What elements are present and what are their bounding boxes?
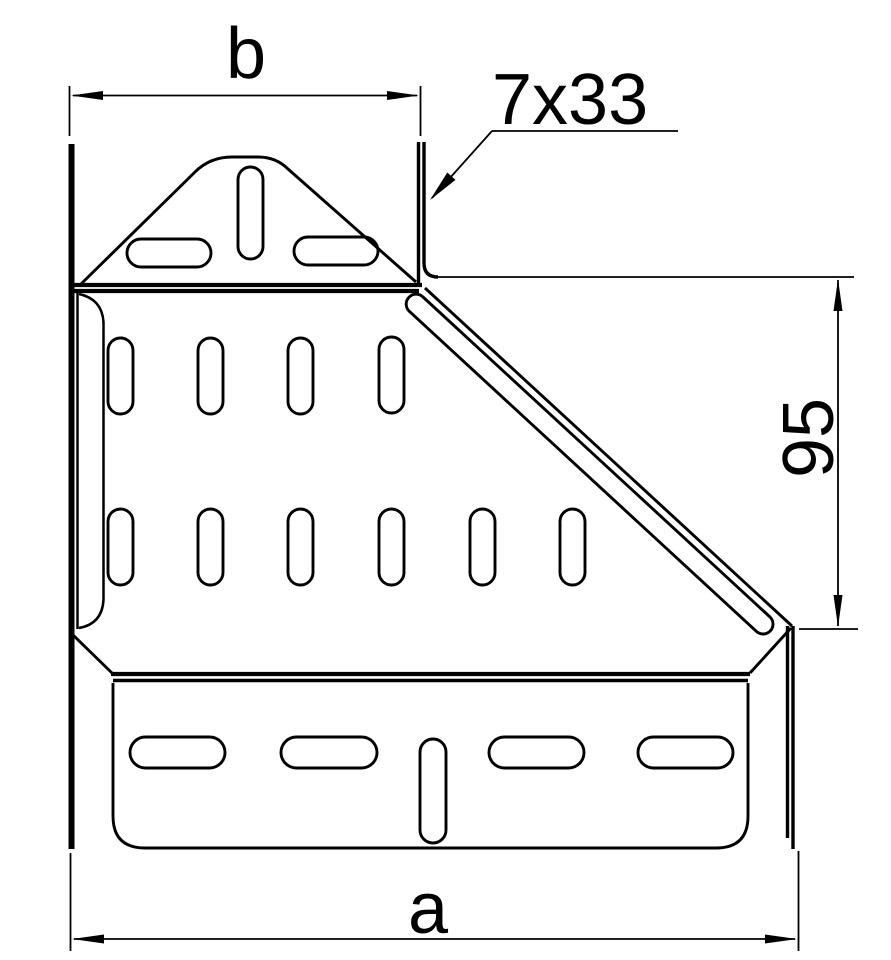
diagonal-fold-band bbox=[406, 294, 773, 634]
slot bbox=[638, 737, 733, 768]
left-flange-inner-line bbox=[79, 294, 104, 628]
slot bbox=[288, 509, 313, 585]
upper-right-edge-outer bbox=[424, 142, 438, 277]
slot bbox=[198, 509, 223, 585]
top-tab-slot-vertical bbox=[238, 167, 263, 259]
technical-drawing-canvas: b 7x33 95 a bbox=[0, 0, 891, 960]
slot-size-callout: 7x33 bbox=[430, 60, 678, 200]
slot bbox=[198, 338, 223, 414]
slot bbox=[108, 509, 133, 585]
dimension-b: b bbox=[70, 14, 421, 136]
dim-95-arrow-top bbox=[834, 279, 843, 311]
bottom-tab-slots bbox=[130, 737, 733, 843]
body-slot-row-1 bbox=[108, 337, 404, 414]
dim-95-arrow-bottom bbox=[834, 595, 843, 627]
slot bbox=[560, 509, 585, 585]
dimension-a: a bbox=[71, 851, 799, 951]
slot-vertical-center bbox=[420, 739, 446, 843]
top-tab-slot-right bbox=[294, 237, 378, 265]
part-outline bbox=[72, 142, 794, 849]
dim-a-arrow-right bbox=[765, 935, 797, 944]
top-tab-slot-left bbox=[127, 239, 211, 267]
slot bbox=[108, 338, 133, 414]
dim-b-arrow-left bbox=[71, 91, 103, 100]
slot-callout-label: 7x33 bbox=[492, 60, 648, 140]
slot bbox=[288, 338, 313, 414]
dim-a-arrow-left bbox=[72, 935, 104, 944]
bottom-tab-outline bbox=[113, 683, 748, 848]
slot bbox=[470, 509, 495, 585]
bottom-tab-right-bend bbox=[750, 628, 791, 673]
dim-b-label: b bbox=[226, 14, 266, 94]
slot-callout-arrow bbox=[430, 173, 456, 201]
reducer-technical-drawing: b 7x33 95 a bbox=[0, 0, 891, 960]
body-slot-row-2 bbox=[108, 509, 585, 585]
slot bbox=[281, 737, 377, 768]
diagonal-edge-outer bbox=[425, 288, 792, 626]
slot bbox=[379, 509, 404, 585]
dim-a-label: a bbox=[408, 869, 449, 949]
slot bbox=[130, 737, 225, 768]
dim-95-label: 95 bbox=[769, 398, 849, 478]
slot bbox=[379, 337, 404, 413]
dimension-95: 95 bbox=[437, 277, 858, 629]
dim-b-arrow-right bbox=[387, 91, 419, 100]
slot bbox=[489, 737, 584, 768]
bottom-tab-left-bend bbox=[73, 635, 113, 674]
